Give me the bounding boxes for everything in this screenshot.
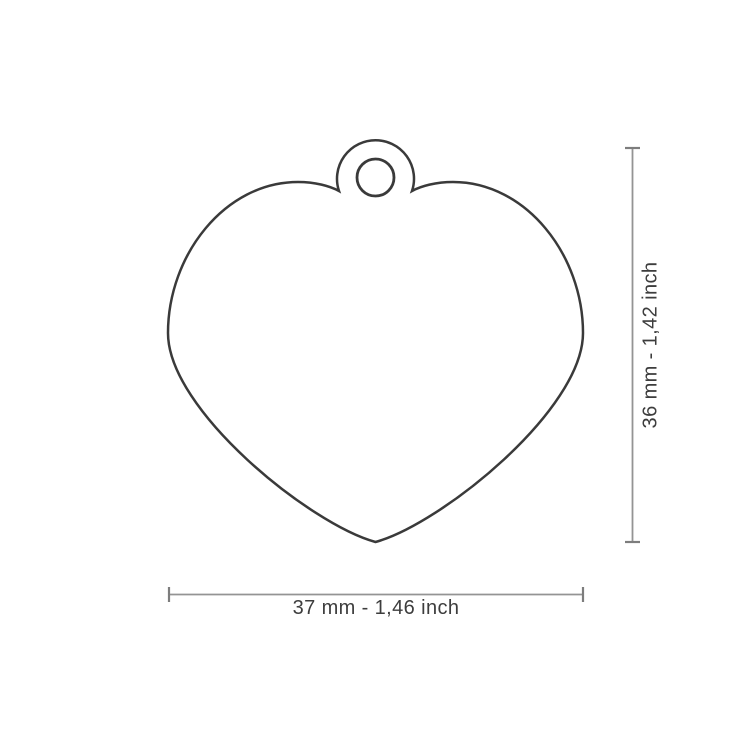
heart-tag-outline <box>168 140 583 542</box>
width-dimension-label: 37 mm - 1,46 inch <box>169 597 583 620</box>
hanging-hole <box>357 159 394 196</box>
height-dimension-line <box>625 148 640 542</box>
height-dimension-label: 36 mm - 1,42 inch <box>640 262 663 429</box>
diagram-canvas: 37 mm - 1,46 inch 36 mm - 1,42 inch <box>0 0 750 750</box>
tag-dimension-diagram <box>0 0 750 750</box>
